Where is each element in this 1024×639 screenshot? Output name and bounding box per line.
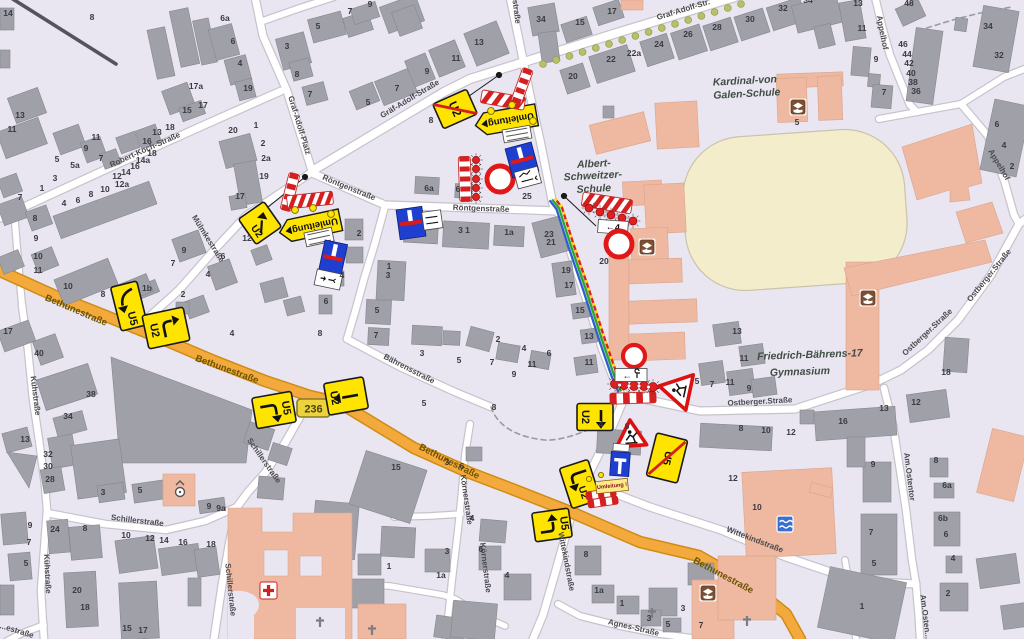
svg-text:5: 5: [366, 97, 371, 107]
svg-text:2: 2: [181, 289, 186, 299]
svg-text:38: 38: [86, 389, 96, 399]
svg-text:7: 7: [99, 153, 104, 163]
svg-text:Gymnasium: Gymnasium: [770, 365, 830, 379]
svg-text:26: 26: [683, 29, 693, 39]
svg-text:28: 28: [45, 474, 55, 484]
svg-text:9: 9: [747, 383, 752, 393]
svg-text:4: 4: [951, 553, 956, 563]
svg-text:5: 5: [666, 619, 671, 629]
svg-text:11: 11: [452, 53, 461, 63]
svg-text:9: 9: [182, 245, 187, 255]
svg-text:9: 9: [34, 233, 39, 243]
svg-text:13: 13: [879, 403, 889, 413]
svg-text:1: 1: [860, 601, 865, 611]
svg-text:6: 6: [231, 36, 236, 46]
svg-text:4: 4: [470, 513, 475, 523]
svg-text:9: 9: [871, 459, 876, 469]
svg-text:Schule: Schule: [576, 182, 611, 196]
svg-text:36: 36: [911, 86, 921, 96]
svg-text:10: 10: [121, 530, 131, 540]
svg-text:18: 18: [165, 122, 175, 132]
svg-text:5: 5: [375, 305, 380, 315]
svg-text:34: 34: [63, 411, 73, 421]
svg-text:7: 7: [395, 83, 400, 93]
svg-text:2: 2: [946, 588, 951, 598]
svg-text:1: 1: [620, 598, 625, 608]
svg-text:13: 13: [15, 110, 25, 120]
svg-text:11: 11: [92, 132, 101, 142]
svg-text:32: 32: [778, 3, 788, 13]
svg-text:1a: 1a: [504, 227, 514, 237]
svg-text:48: 48: [904, 0, 914, 8]
svg-text:10: 10: [761, 425, 771, 435]
svg-text:46: 46: [898, 39, 908, 49]
svg-text:18: 18: [206, 539, 216, 549]
svg-text:13: 13: [732, 326, 742, 336]
svg-text:5a: 5a: [70, 160, 80, 170]
svg-text:42: 42: [904, 58, 914, 68]
svg-text:9: 9: [512, 369, 517, 379]
svg-text:U2: U2: [579, 410, 591, 424]
svg-text:5: 5: [457, 355, 462, 365]
svg-text:9a: 9a: [216, 503, 226, 513]
svg-text:6: 6: [625, 421, 630, 431]
svg-text:6: 6: [944, 529, 949, 539]
svg-text:10: 10: [100, 184, 110, 194]
svg-text:1b: 1b: [142, 283, 152, 293]
svg-text:5: 5: [55, 154, 60, 164]
svg-text:8: 8: [429, 115, 434, 125]
svg-text:17: 17: [607, 6, 617, 16]
svg-text:11: 11: [726, 377, 735, 387]
svg-text:13: 13: [152, 127, 162, 137]
svg-text:22a: 22a: [627, 48, 641, 58]
svg-text:7: 7: [27, 537, 32, 547]
svg-text:20: 20: [599, 256, 609, 266]
svg-text:24: 24: [50, 524, 60, 534]
svg-text:4: 4: [62, 198, 67, 208]
svg-text:17: 17: [564, 280, 574, 290]
svg-text:4: 4: [505, 570, 510, 580]
svg-text:15: 15: [575, 305, 585, 315]
svg-text:6: 6: [221, 251, 226, 261]
svg-text:7: 7: [710, 379, 715, 389]
svg-text:18: 18: [147, 148, 157, 158]
svg-text:6a: 6a: [220, 13, 230, 23]
svg-text:9: 9: [207, 501, 212, 511]
svg-text:3: 3: [647, 613, 652, 623]
svg-text:9: 9: [368, 0, 373, 9]
svg-text:7: 7: [374, 330, 379, 340]
svg-text:19: 19: [259, 171, 269, 181]
svg-text:2: 2: [1010, 161, 1015, 171]
svg-text:8: 8: [492, 402, 497, 412]
svg-text:3 1: 3 1: [458, 225, 470, 235]
svg-text:8: 8: [90, 12, 95, 22]
svg-text:13: 13: [584, 331, 594, 341]
svg-text:6: 6: [324, 296, 329, 306]
svg-text:12: 12: [242, 233, 252, 243]
svg-text:8: 8: [101, 289, 106, 299]
svg-text:4: 4: [206, 269, 211, 279]
svg-text:13: 13: [853, 0, 863, 8]
svg-text:2: 2: [261, 138, 266, 148]
svg-text:11: 11: [858, 23, 867, 33]
svg-text:25: 25: [522, 191, 532, 201]
svg-text:2: 2: [496, 334, 501, 344]
svg-text:7: 7: [171, 258, 176, 268]
svg-text:21: 21: [546, 237, 556, 247]
svg-text:3: 3: [53, 173, 58, 183]
svg-text:6b: 6b: [938, 513, 948, 523]
svg-text:9: 9: [425, 66, 430, 76]
svg-text:7: 7: [18, 192, 23, 202]
svg-text:11: 11: [740, 353, 749, 363]
svg-text:4: 4: [230, 328, 235, 338]
svg-text:6a: 6a: [942, 480, 952, 490]
svg-text:6: 6: [547, 348, 552, 358]
svg-text:17a: 17a: [189, 81, 203, 91]
svg-text:8: 8: [739, 423, 744, 433]
svg-text:16: 16: [142, 136, 152, 146]
svg-text:16: 16: [178, 537, 188, 547]
svg-text:10: 10: [33, 251, 43, 261]
svg-text:12: 12: [728, 473, 738, 483]
svg-text:13: 13: [474, 37, 484, 47]
svg-text:32: 32: [43, 449, 53, 459]
svg-text:8: 8: [89, 189, 94, 199]
svg-text:5: 5: [316, 21, 321, 31]
svg-text:11: 11: [8, 124, 17, 134]
svg-text:7: 7: [490, 357, 495, 367]
svg-text:1a: 1a: [436, 570, 446, 580]
svg-text:3: 3: [445, 457, 450, 467]
svg-text:7: 7: [882, 87, 887, 97]
svg-text:22: 22: [606, 54, 616, 64]
svg-text:14: 14: [3, 8, 13, 18]
svg-text:17: 17: [3, 326, 13, 336]
svg-text:7: 7: [699, 620, 704, 630]
svg-text:7: 7: [869, 527, 874, 537]
svg-text:3: 3: [386, 270, 391, 280]
svg-text:4: 4: [1002, 140, 1007, 150]
svg-text:17: 17: [198, 100, 208, 110]
svg-text:8: 8: [295, 69, 300, 79]
svg-text:8: 8: [83, 523, 88, 533]
svg-text:20: 20: [568, 71, 578, 81]
svg-text:30: 30: [43, 461, 53, 471]
svg-text:1: 1: [40, 183, 45, 193]
svg-text:8: 8: [33, 213, 38, 223]
svg-text:34: 34: [536, 14, 546, 24]
svg-text:10: 10: [63, 281, 73, 291]
svg-text:7: 7: [348, 6, 353, 16]
svg-text:12: 12: [911, 397, 921, 407]
svg-text:34: 34: [983, 21, 993, 31]
svg-text:3: 3: [420, 348, 425, 358]
svg-text:7: 7: [308, 89, 313, 99]
svg-text:32: 32: [994, 50, 1004, 60]
svg-text:1: 1: [254, 120, 259, 130]
svg-text:11: 11: [528, 359, 537, 369]
svg-text:9: 9: [84, 143, 89, 153]
svg-text:8: 8: [584, 549, 589, 559]
svg-text:U5: U5: [279, 400, 293, 416]
svg-text:9: 9: [874, 54, 879, 64]
svg-text:17: 17: [138, 625, 148, 635]
svg-text:3: 3: [681, 603, 686, 613]
svg-text:11: 11: [34, 265, 43, 275]
svg-text:6: 6: [456, 184, 461, 194]
svg-text:3: 3: [285, 41, 290, 51]
svg-text:2: 2: [357, 228, 362, 238]
svg-text:1a: 1a: [594, 585, 604, 595]
svg-text:4: 4: [238, 58, 243, 68]
svg-text:4: 4: [522, 343, 527, 353]
svg-text:6: 6: [76, 195, 81, 205]
svg-text:6a: 6a: [424, 183, 434, 193]
svg-text:5: 5: [138, 485, 143, 495]
svg-text:5: 5: [422, 398, 427, 408]
svg-text:5: 5: [24, 558, 29, 568]
svg-text:28: 28: [712, 22, 722, 32]
svg-text:11: 11: [585, 357, 594, 367]
svg-text:12: 12: [786, 427, 796, 437]
svg-text:13: 13: [20, 434, 30, 444]
svg-text:5: 5: [795, 117, 800, 127]
svg-text:2a: 2a: [261, 153, 271, 163]
svg-text:30: 30: [745, 14, 755, 24]
svg-text:34: 34: [803, 0, 813, 5]
svg-text:15: 15: [575, 17, 585, 27]
svg-text:20: 20: [228, 125, 238, 135]
svg-text:1: 1: [387, 561, 392, 571]
svg-text:40: 40: [34, 348, 44, 358]
svg-text:15: 15: [391, 462, 401, 472]
svg-text:9: 9: [28, 520, 33, 530]
svg-text:19: 19: [243, 83, 253, 93]
svg-text:20: 20: [72, 585, 82, 595]
svg-text:5: 5: [695, 376, 700, 386]
svg-text:15: 15: [182, 105, 192, 115]
svg-text:19: 19: [561, 265, 571, 275]
svg-text:6: 6: [460, 461, 465, 471]
svg-text:3: 3: [101, 487, 106, 497]
svg-text:4: 4: [599, 419, 604, 429]
svg-text:U5: U5: [557, 516, 571, 532]
svg-text:5: 5: [872, 558, 877, 568]
svg-text:14: 14: [159, 535, 169, 545]
svg-text:18: 18: [941, 367, 951, 377]
svg-text:236: 236: [304, 404, 322, 416]
svg-text:17: 17: [235, 191, 245, 201]
svg-text:16: 16: [838, 416, 848, 426]
svg-text:12: 12: [145, 533, 155, 543]
svg-text:8: 8: [934, 455, 939, 465]
svg-text:15: 15: [122, 623, 132, 633]
svg-text:4: 4: [340, 270, 345, 280]
svg-text:8: 8: [318, 328, 323, 338]
svg-text:←: ←: [623, 371, 632, 381]
svg-text:10: 10: [752, 502, 762, 512]
svg-text:6: 6: [479, 544, 484, 554]
svg-text:24: 24: [654, 39, 664, 49]
svg-text:3: 3: [445, 546, 450, 556]
svg-text:18: 18: [80, 602, 90, 612]
svg-text:6: 6: [995, 119, 1000, 129]
